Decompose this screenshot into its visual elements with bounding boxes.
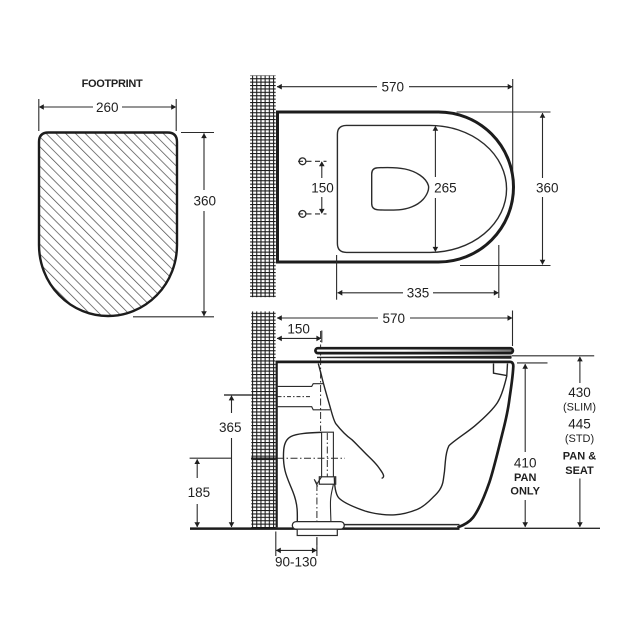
svg-text:570: 570 (383, 311, 406, 326)
svg-text:265: 265 (434, 181, 457, 196)
svg-text:410: 410 (514, 456, 537, 471)
svg-text:ONLY: ONLY (510, 486, 540, 498)
svg-text:(STD): (STD) (565, 433, 594, 445)
svg-text:360: 360 (536, 180, 559, 195)
svg-text:PAN: PAN (514, 472, 536, 484)
svg-text:260: 260 (96, 100, 119, 115)
svg-text:(SLIM): (SLIM) (563, 401, 596, 413)
svg-text:445: 445 (568, 417, 591, 432)
svg-text:365: 365 (219, 420, 242, 435)
svg-text:150: 150 (287, 321, 310, 336)
svg-text:430: 430 (568, 385, 591, 400)
svg-text:SEAT: SEAT (565, 465, 594, 477)
svg-text:570: 570 (382, 80, 405, 95)
svg-text:150: 150 (311, 180, 334, 195)
svg-text:FOOTPRINT: FOOTPRINT (82, 78, 143, 90)
svg-text:90-130: 90-130 (275, 555, 317, 570)
svg-text:335: 335 (407, 286, 430, 301)
svg-text:185: 185 (188, 485, 211, 500)
svg-text:360: 360 (194, 193, 217, 208)
svg-text:PAN &: PAN & (563, 451, 596, 463)
